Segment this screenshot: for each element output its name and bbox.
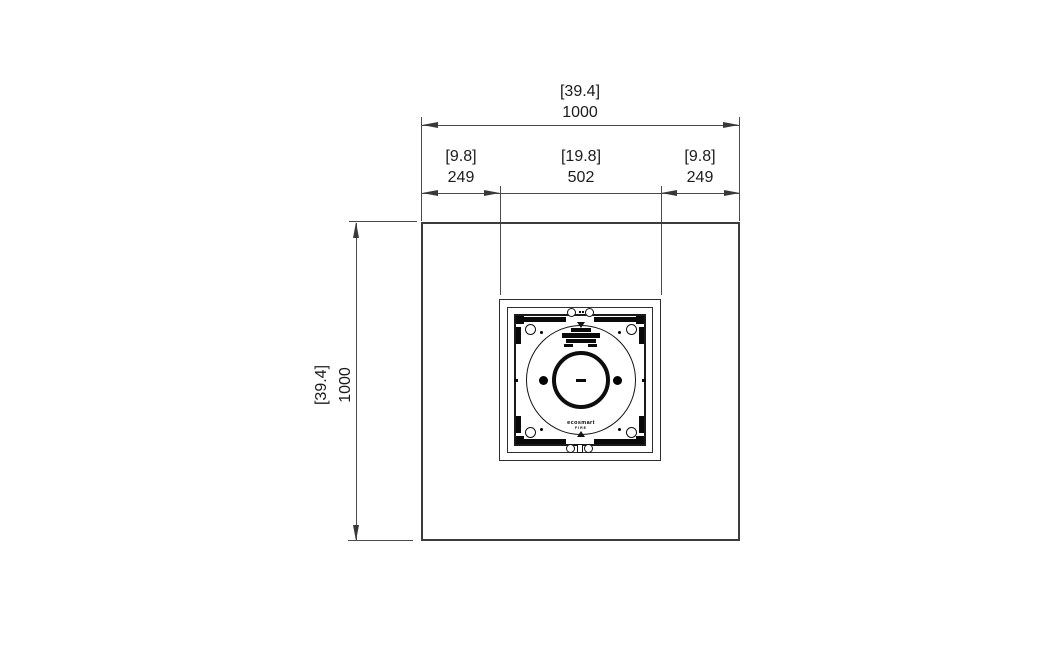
edge-tick	[642, 379, 646, 382]
corner-bracket	[516, 316, 524, 324]
burner-width-label-mm: 502	[501, 168, 661, 188]
screw-hole	[525, 324, 536, 335]
offset-left-label-mm: 249	[421, 168, 501, 188]
edge-tick	[514, 379, 518, 382]
bottom-center-fitting	[577, 444, 583, 453]
fastener-hole	[566, 444, 575, 453]
top-center-dot	[582, 311, 584, 313]
dimension-arrow-right-icon	[724, 190, 740, 196]
screw-hole	[525, 427, 536, 438]
corner-bracket-bar	[639, 327, 644, 344]
corner-bracket	[636, 436, 644, 444]
drawing-canvas: [39.4] 1000 [9.8] 249 [19.8] 502 [9.8] 2…	[0, 0, 1056, 653]
overall-width-label-inches: [39.4]	[421, 82, 739, 102]
dimension-arrow-right-icon	[723, 122, 739, 128]
extension-line-bottom	[348, 540, 413, 541]
corner-bracket-bar	[639, 416, 644, 433]
pilot-dot	[540, 428, 543, 431]
offset-right-label-inches: [9.8]	[660, 147, 740, 167]
side-knob	[539, 376, 548, 385]
brand-mark: ecosmart FIRE	[551, 420, 611, 430]
burner-top-band-right	[594, 317, 640, 322]
dimension-arrow-down-icon	[353, 525, 359, 541]
fastener-hole	[567, 308, 576, 317]
dimension-arrow-left-icon	[661, 190, 677, 196]
overall-height-dimension-line	[356, 223, 357, 540]
fastener-hole	[585, 308, 594, 317]
pilot-dot	[618, 331, 621, 334]
dimension-arrow-right-icon	[484, 190, 500, 196]
burner-bottom-band-right	[594, 439, 640, 444]
side-knob	[613, 376, 622, 385]
corner-bracket-bar	[516, 416, 521, 433]
dimension-arrow-left-icon	[422, 122, 438, 128]
valve-foot	[564, 344, 573, 347]
valve-stack-bar	[562, 333, 600, 338]
screw-hole	[626, 324, 637, 335]
corner-bracket	[636, 316, 644, 324]
dimension-arrow-left-icon	[422, 190, 438, 196]
valve-stack-bar	[571, 328, 591, 332]
burner-width-label-inches: [19.8]	[501, 147, 661, 167]
overall-width-label-mm: 1000	[421, 103, 739, 123]
pilot-dot	[618, 428, 621, 431]
corner-bracket-bar	[516, 327, 521, 344]
top-center-dot	[579, 311, 581, 313]
burner-bottom-band-left	[520, 439, 566, 444]
center-mark	[576, 379, 586, 382]
segment-dimension-line	[422, 193, 740, 194]
dimension-arrow-up-icon	[353, 222, 359, 238]
corner-bracket	[516, 436, 524, 444]
offset-right-label-mm: 249	[660, 168, 740, 188]
screw-hole	[626, 427, 637, 438]
burner-top-band-left	[520, 317, 566, 322]
offset-left-label-inches: [9.8]	[421, 147, 501, 167]
valve-foot	[588, 344, 597, 347]
valve-stack-bar	[566, 339, 596, 343]
overall-width-dimension-line	[422, 125, 739, 126]
overall-height-label-inches: [39.4]	[312, 345, 332, 425]
fastener-hole	[584, 444, 593, 453]
pilot-dot	[540, 331, 543, 334]
overall-height-label-mm: 1000	[336, 345, 356, 425]
extension-line-top	[349, 221, 417, 222]
brand-line2: FIRE	[551, 426, 611, 430]
